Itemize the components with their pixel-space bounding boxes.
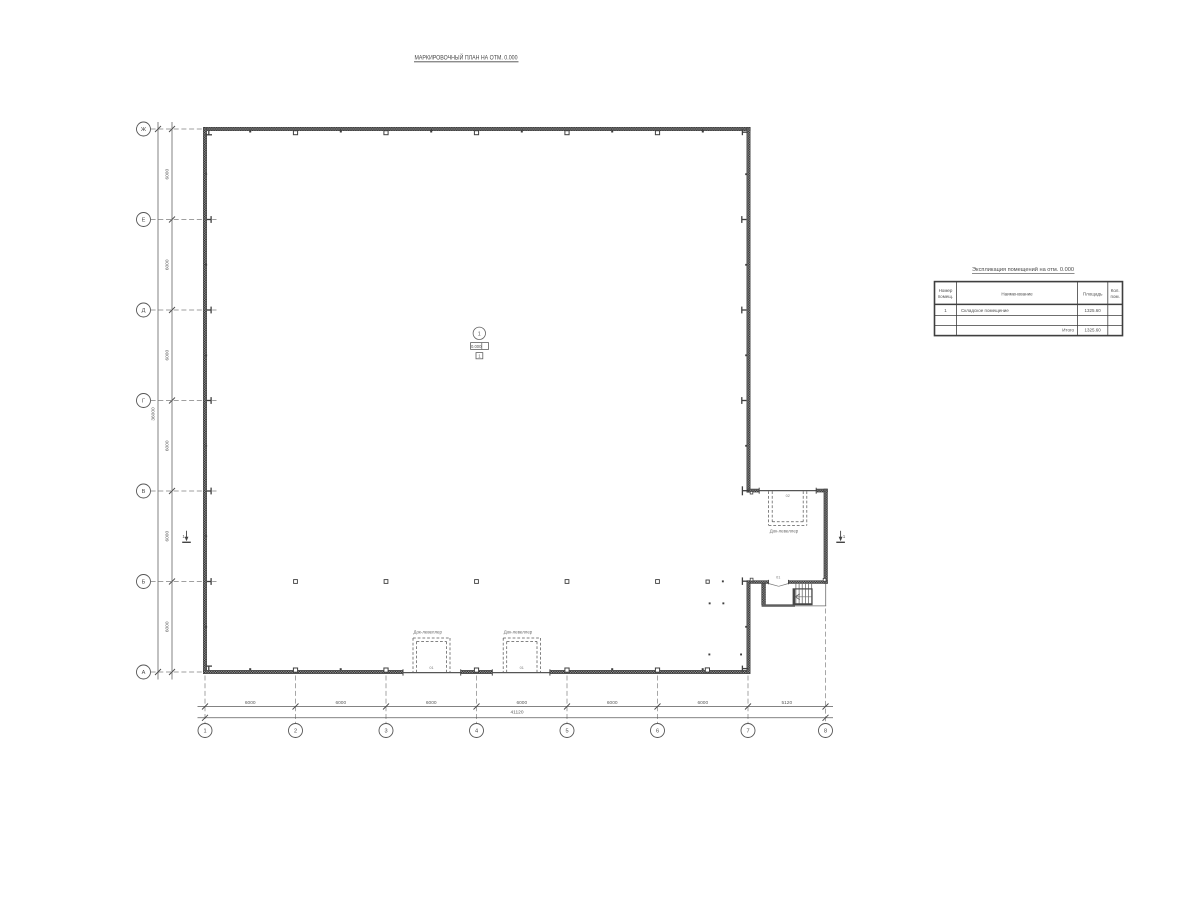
svg-text:2: 2 — [294, 729, 297, 735]
svg-text:Номер: Номер — [939, 288, 953, 293]
svg-text:Площадь: Площадь — [1083, 291, 1103, 296]
svg-text:1: 1 — [203, 729, 206, 735]
svg-text:Экспликация помещений на отм.: Экспликация помещений на отм. 0.000 — [972, 266, 1074, 273]
svg-text:1325.60: 1325.60 — [1085, 328, 1102, 333]
svg-text:7: 7 — [746, 729, 749, 735]
svg-text:6000: 6000 — [165, 259, 171, 270]
svg-text:01: 01 — [776, 575, 780, 579]
svg-text:6000: 6000 — [245, 700, 256, 706]
svg-text:Складское помещение: Складское помещение — [961, 308, 1009, 313]
svg-text:6: 6 — [656, 729, 659, 735]
svg-text:01: 01 — [520, 666, 524, 670]
svg-text:3: 3 — [384, 729, 387, 735]
svg-text:6000: 6000 — [607, 700, 618, 706]
svg-text:Док-левеллер: Док-левеллер — [504, 629, 533, 634]
svg-text:А: А — [142, 670, 146, 676]
svg-text:6000: 6000 — [165, 621, 171, 632]
svg-text:В: В — [142, 489, 146, 495]
svg-text:6000: 6000 — [697, 700, 708, 706]
svg-text:6000: 6000 — [165, 350, 171, 361]
svg-text:4: 4 — [475, 729, 478, 735]
svg-text:6000: 6000 — [426, 700, 437, 706]
svg-text:1: 1 — [478, 331, 481, 337]
svg-text:5: 5 — [565, 729, 568, 735]
svg-text:8: 8 — [824, 729, 827, 735]
svg-text:МАРКИРОВОЧНЫЙ ПЛАН НА ОТМ. 0.0: МАРКИРОВОЧНЫЙ ПЛАН НА ОТМ. 0.000 — [415, 53, 518, 62]
svg-text:5120: 5120 — [781, 700, 792, 706]
svg-text:Ж: Ж — [141, 127, 147, 133]
svg-text:0.000: 0.000 — [471, 344, 482, 349]
svg-text:01: 01 — [429, 666, 433, 670]
svg-text:Кол.: Кол. — [1111, 288, 1120, 293]
svg-text:Г: Г — [142, 399, 145, 405]
svg-text:Е: Е — [142, 218, 146, 224]
svg-text:36000: 36000 — [151, 407, 157, 421]
svg-text:Док-левеллер: Док-левеллер — [413, 629, 442, 634]
svg-text:6000: 6000 — [516, 700, 527, 706]
svg-text:Док-левеллер: Док-левеллер — [770, 529, 799, 534]
svg-text:41120: 41120 — [511, 710, 524, 716]
svg-text:6000: 6000 — [165, 440, 171, 451]
svg-text:6000: 6000 — [165, 531, 171, 542]
svg-text:Наименование: Наименование — [1001, 291, 1033, 296]
svg-text:1: 1 — [843, 534, 846, 539]
svg-text:помещ.: помещ. — [938, 294, 954, 299]
svg-text:1: 1 — [182, 534, 185, 539]
svg-text:02: 02 — [786, 494, 790, 498]
svg-text:Д: Д — [142, 308, 146, 314]
svg-text:пом.: пом. — [1111, 294, 1120, 299]
svg-text:1325.60: 1325.60 — [1085, 308, 1102, 313]
svg-text:6000: 6000 — [165, 169, 171, 180]
svg-text:Б: Б — [142, 580, 146, 586]
svg-text:Итого: Итого — [1062, 328, 1074, 333]
svg-text:6000: 6000 — [335, 700, 346, 706]
